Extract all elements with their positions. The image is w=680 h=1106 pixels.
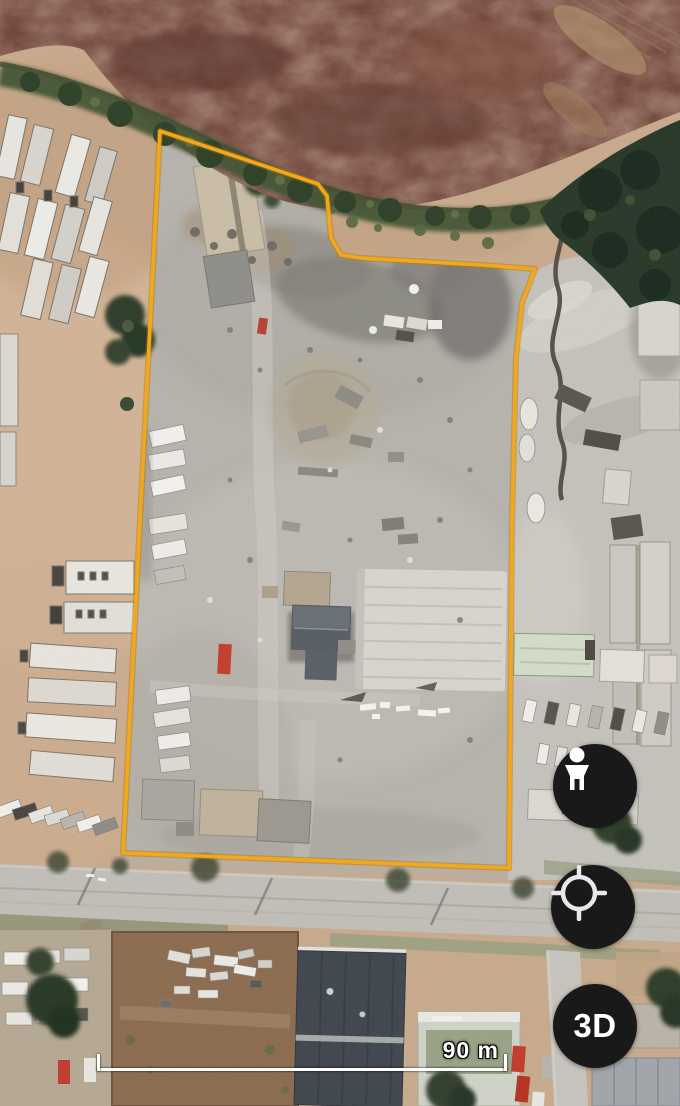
pegman-button[interactable] [553, 744, 637, 828]
map-viewport[interactable]: 3D 90 m [0, 0, 680, 1106]
3d-view-button[interactable]: 3D [553, 984, 637, 1068]
my-location-icon [551, 865, 607, 921]
my-location-button[interactable] [551, 865, 635, 949]
pegman-icon [553, 744, 601, 794]
3d-button-label: 3D [573, 1007, 616, 1045]
